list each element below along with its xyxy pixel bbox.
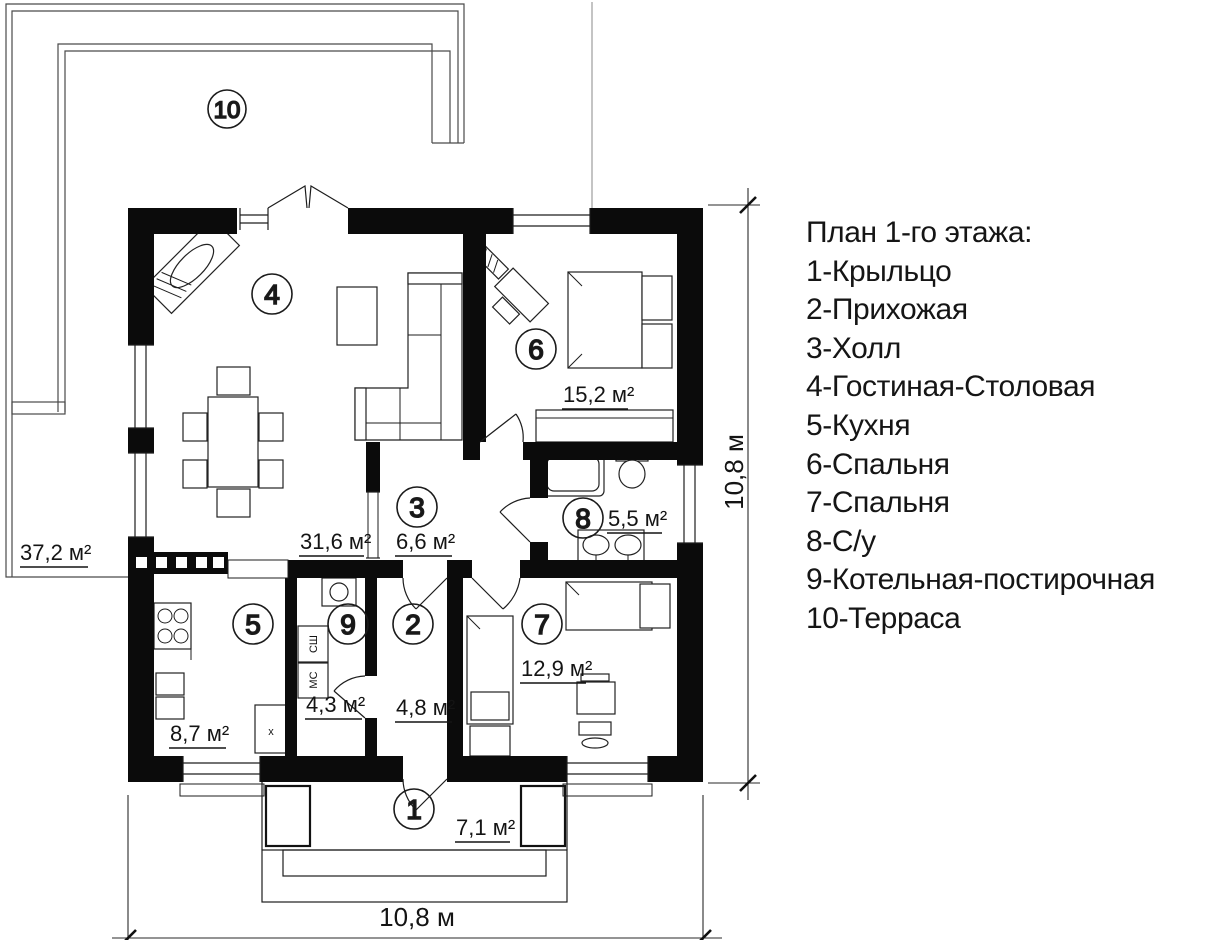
chair (183, 460, 207, 488)
legend-item-2: 2-Прихожая (806, 291, 1155, 330)
legend-item-3: 3-Холл (806, 330, 1155, 369)
room-number: 5 (245, 609, 261, 640)
bed-single-vertical (467, 616, 513, 756)
chair (217, 367, 250, 395)
legend-item-7: 7-Спальня (806, 484, 1155, 523)
room-number: 9 (340, 609, 356, 640)
room-number: 8 (575, 503, 591, 534)
room-number: 4 (264, 279, 280, 310)
window-left-2 (128, 453, 154, 537)
area-bedroom6: 15,2 м² (563, 382, 634, 407)
chair (217, 489, 250, 517)
chair (259, 460, 283, 488)
room-badge-10: 10 (208, 90, 246, 128)
area-terrace: 37,2 м² (20, 540, 91, 565)
legend-item-6: 6-Спальня (806, 446, 1155, 485)
legend-item-1: 1-Крыльцо (806, 253, 1155, 292)
pillow (471, 692, 509, 720)
room-number: 1 (406, 794, 422, 825)
floor-plan-page: СШ МС x (0, 0, 1231, 940)
window-bedroom6 (513, 208, 590, 234)
fridge (156, 673, 184, 719)
room-badge-8: 8 (563, 498, 603, 538)
room-badge-3: 3 (397, 487, 437, 527)
coffee-table (337, 287, 377, 345)
bed-single-horizontal (566, 582, 670, 630)
stove (154, 603, 191, 649)
porch-step-inner (283, 850, 546, 876)
desk-computer (577, 674, 615, 748)
area-living: 31,6 м² (300, 529, 371, 554)
dimension-width-label: 10,8 м (379, 902, 455, 932)
room-number: 10 (214, 97, 241, 124)
door-hall-to-room7 (472, 578, 520, 609)
water-heater (322, 578, 356, 606)
area-hall: 6,6 м² (396, 529, 455, 554)
area-bathroom: 5,5 м² (608, 506, 667, 531)
sink-marker: x (268, 726, 274, 738)
bed-double (568, 272, 672, 368)
door-hall-to-bathroom (500, 498, 530, 542)
keyboard (579, 722, 611, 735)
porch-pillar-left (266, 786, 310, 846)
legend-item-8: 8-С/у (806, 523, 1155, 562)
legend-title: План 1-го этажа: (806, 214, 1155, 253)
kitchen-sink: x (255, 705, 287, 753)
dryer: СШ (298, 626, 328, 662)
dimension-height-label: 10,8 м (719, 434, 749, 510)
legend-item-10: 10-Терраса (806, 600, 1155, 639)
room-number: 2 (405, 609, 421, 640)
terrace-railing-endcap (12, 402, 65, 414)
pillow (642, 324, 672, 368)
kitchen-bar-wall (128, 552, 228, 574)
room-number: 6 (528, 334, 544, 365)
french-door-terrace (268, 186, 348, 208)
legend-item-4: 4-Гостиная-Столовая (806, 368, 1155, 407)
porch-pillar-right (521, 786, 565, 846)
room-number: 7 (534, 609, 550, 640)
room-badge-4: 4 (252, 274, 292, 314)
room-badge-5: 5 (233, 604, 273, 644)
window-kitchen (180, 756, 264, 796)
washer-label: МС (308, 671, 320, 688)
room-badge-1: 1 (394, 789, 434, 829)
desk-chair (582, 738, 608, 748)
room-badge-9: 9 (328, 604, 368, 644)
room-badge-7: 7 (522, 604, 562, 644)
window-left-1 (128, 345, 154, 428)
bed-bench (470, 726, 510, 756)
area-hallway: 4,8 м² (396, 695, 455, 720)
door-hall-to-bedroom6 (480, 414, 523, 442)
window-bathroom (677, 465, 703, 543)
dining-table (183, 367, 283, 517)
area-kitchen: 8,7 м² (170, 721, 229, 746)
area-porch: 7,1 м² (456, 815, 515, 840)
area-bedroom7: 12,9 м² (521, 656, 592, 681)
area-boiler: 4,3 м² (306, 692, 365, 717)
window-sill (180, 784, 264, 796)
room-badge-2: 2 (393, 604, 433, 644)
room-badge-6: 6 (516, 329, 556, 369)
bedroom6-desk (483, 268, 548, 333)
room-number: 3 (409, 492, 425, 523)
legend: План 1-го этажа: 1-Крыльцо 2-Прихожая 3-… (806, 214, 1155, 639)
sink-vanity (578, 530, 644, 562)
window-bedroom7 (563, 756, 652, 796)
dryer-label: СШ (308, 635, 320, 653)
french-door-sidelight (240, 208, 268, 230)
chair (183, 413, 207, 441)
opening-living-to-kitchen (228, 560, 288, 578)
dresser (536, 410, 673, 442)
dimension-right: 10,8 м (708, 188, 760, 800)
pillow (642, 276, 672, 320)
window-sill (563, 784, 652, 796)
chair (259, 413, 283, 441)
legend-item-9: 9-Котельная-постирочная (806, 561, 1155, 600)
legend-item-5: 5-Кухня (806, 407, 1155, 446)
pillow (640, 584, 670, 628)
